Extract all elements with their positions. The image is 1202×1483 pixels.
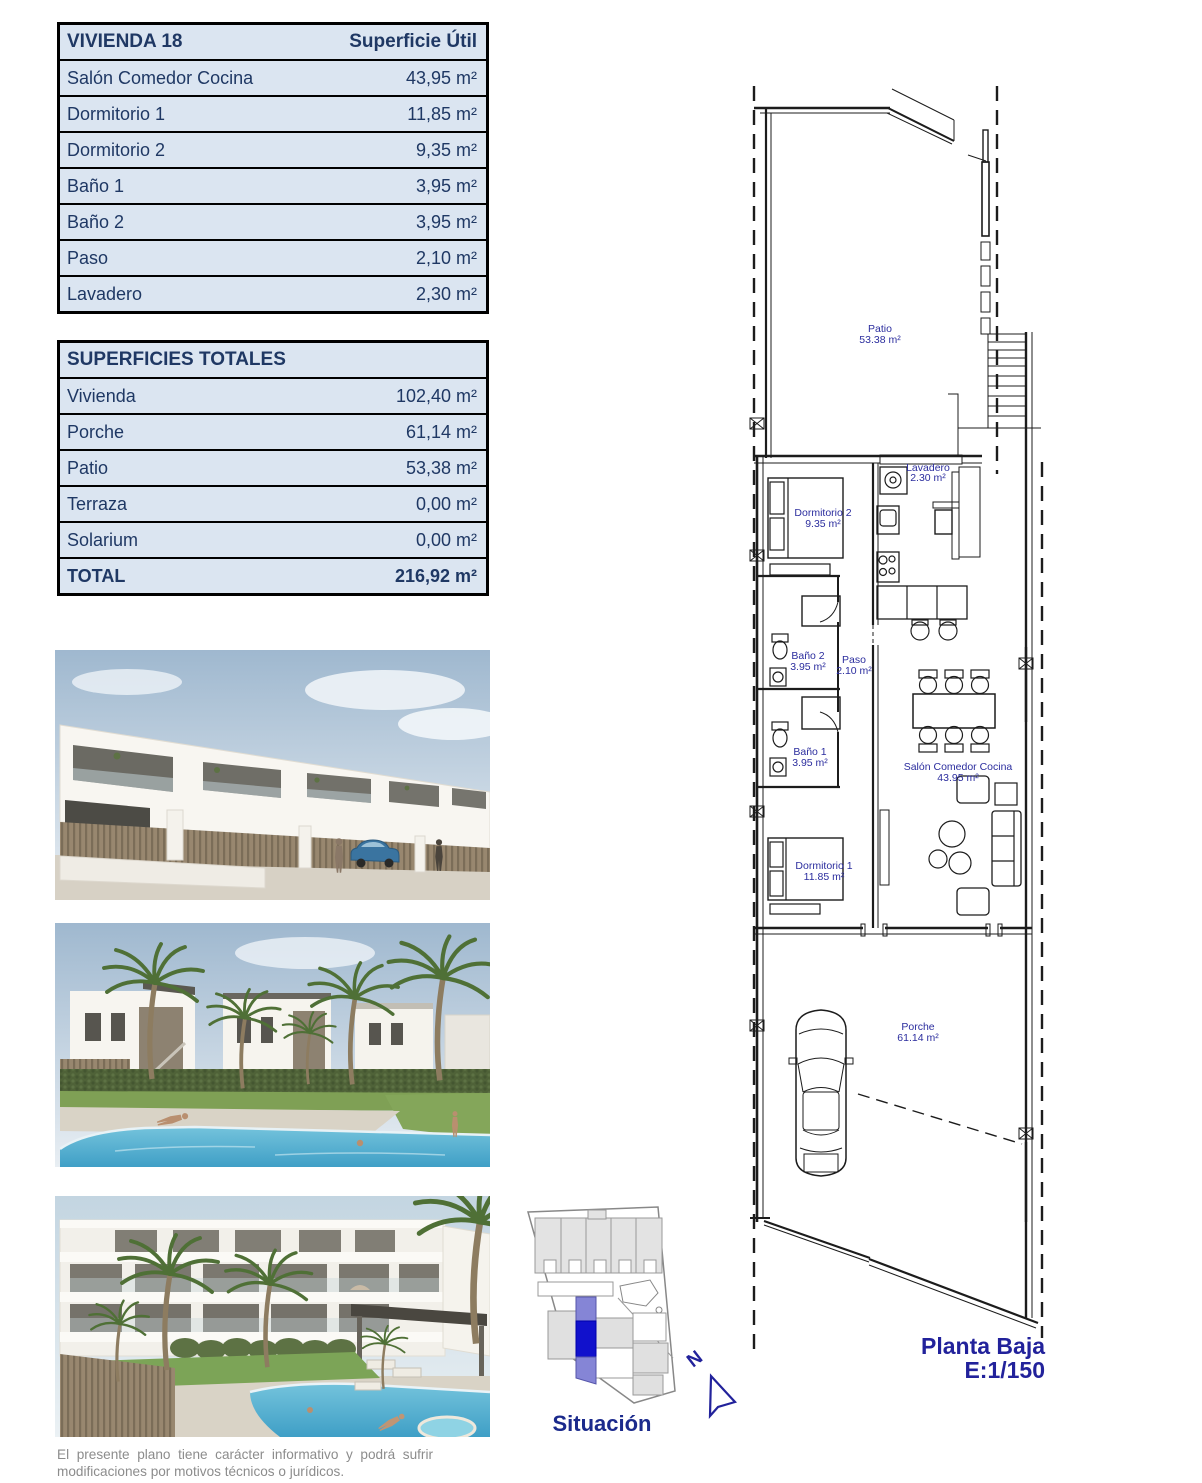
table-row: Salón Comedor Cocina 43,95 m² (60, 61, 486, 97)
plan-caption: Planta Baja E:1/150 (845, 1334, 1045, 1383)
total-value: 216,92 m² (395, 566, 477, 587)
table-row: Solarium 0,00 m² (60, 523, 486, 559)
plan-caption-scale: E:1/150 (845, 1358, 1045, 1382)
north-arrow-icon (710, 1376, 735, 1416)
room-area-bano2: 3.95 m² (790, 661, 826, 673)
row-value: 0,00 m² (416, 530, 477, 551)
table-row: Vivienda 102,40 m² (60, 379, 486, 415)
row-label: Dormitorio 1 (67, 104, 165, 125)
table-row: Baño 1 3,95 m² (60, 169, 486, 205)
row-label: Baño 1 (67, 176, 124, 197)
plan-sheet: VIVIENDA 18 Superficie Útil Salón Comedo… (0, 0, 1202, 1483)
room-area-porche: 61.14 m² (897, 1032, 939, 1044)
table-row: Dormitorio 2 9,35 m² (60, 133, 486, 169)
table-row: Dormitorio 1 11,85 m² (60, 97, 486, 133)
row-value: 3,95 m² (416, 176, 477, 197)
room-area-patio: 53.38 m² (859, 334, 901, 346)
room-area-lavadero: 2.30 m² (910, 472, 946, 484)
swimmer-figure (357, 1140, 363, 1146)
site-map-label: Situación (518, 1411, 686, 1437)
row-value: 9,35 m² (416, 140, 477, 161)
room-area-salon: 43.95 m² (937, 772, 979, 784)
site-highlight-unit (576, 1321, 596, 1357)
row-value: 2,10 m² (416, 248, 477, 269)
room-area-dormitorio1: 11.85 m² (804, 871, 845, 883)
table-totales-header: SUPERFICIES TOTALES (60, 343, 486, 379)
table-row: Baño 2 3,95 m² (60, 205, 486, 241)
table-row: Patio 53,38 m² (60, 451, 486, 487)
porch (750, 1010, 1038, 1328)
row-label: Vivienda (67, 386, 136, 407)
room-area-dormitorio2: 9.35 m² (805, 518, 841, 530)
table-totales: SUPERFICIES TOTALES Vivienda 102,40 m² P… (57, 340, 489, 596)
photo-apartments-pool (55, 1196, 490, 1437)
site-highlight-top (576, 1297, 596, 1321)
north-letter: N (683, 1347, 707, 1372)
room-area-paso: 2.10 m² (836, 665, 872, 677)
row-value: 53,38 m² (406, 458, 477, 479)
table-vivienda-header: VIVIENDA 18 Superficie Útil (60, 25, 486, 61)
disclaimer-text: El presente plano tiene carácter informa… (57, 1446, 433, 1481)
row-label: Lavadero (67, 284, 142, 305)
site-highlight-bottom (576, 1357, 596, 1384)
furniture (768, 467, 1021, 915)
table-total-row: TOTAL 216,92 m² (60, 559, 486, 593)
row-label: Paso (67, 248, 108, 269)
table-row: Lavadero 2,30 m² (60, 277, 486, 311)
room-labels: Patio 53.38 m² Lavadero 2.30 m² Dormitor… (790, 323, 1012, 1044)
patio-walls (754, 89, 990, 458)
row-value: 43,95 m² (406, 68, 477, 89)
floor-plan: Patio 53.38 m² Lavadero 2.30 m² Dormitor… (730, 82, 1202, 1382)
site-map (518, 1198, 686, 1410)
disclaimer-line1: El presente plano tiene carácter informa… (57, 1446, 433, 1463)
swimmer-figure (307, 1407, 313, 1413)
table-vivienda-title: VIVIENDA 18 (67, 31, 182, 53)
photo-pool-palms (55, 923, 490, 1167)
plan-caption-title: Planta Baja (845, 1334, 1045, 1358)
total-label: TOTAL (67, 566, 125, 587)
row-value: 0,00 m² (416, 494, 477, 515)
row-label: Salón Comedor Cocina (67, 68, 253, 89)
row-label: Solarium (67, 530, 138, 551)
row-label: Baño 2 (67, 212, 124, 233)
row-value: 11,85 m² (407, 104, 477, 125)
row-value: 102,40 m² (396, 386, 477, 407)
row-value: 2,30 m² (416, 284, 477, 305)
row-label: Dormitorio 2 (67, 140, 165, 161)
row-label: Patio (67, 458, 108, 479)
exterior-walls (754, 332, 1032, 1318)
row-value: 61,14 m² (406, 422, 477, 443)
table-row: Paso 2,10 m² (60, 241, 486, 277)
table-totales-title: SUPERFICIES TOTALES (67, 349, 286, 371)
table-row: Porche 61,14 m² (60, 415, 486, 451)
row-label: Terraza (67, 494, 127, 515)
disclaimer-line2: modificaciones por motivos técnicos o ju… (57, 1463, 433, 1480)
car-top-view (789, 1010, 853, 1176)
room-area-bano1: 3.95 m² (792, 757, 828, 769)
table-vivienda: VIVIENDA 18 Superficie Útil Salón Comedo… (57, 22, 489, 314)
row-value: 3,95 m² (416, 212, 477, 233)
table-row: Terraza 0,00 m² (60, 487, 486, 523)
photo-townhouses (55, 650, 490, 900)
row-label: Porche (67, 422, 124, 443)
table-vivienda-column-header: Superficie Útil (349, 31, 477, 53)
